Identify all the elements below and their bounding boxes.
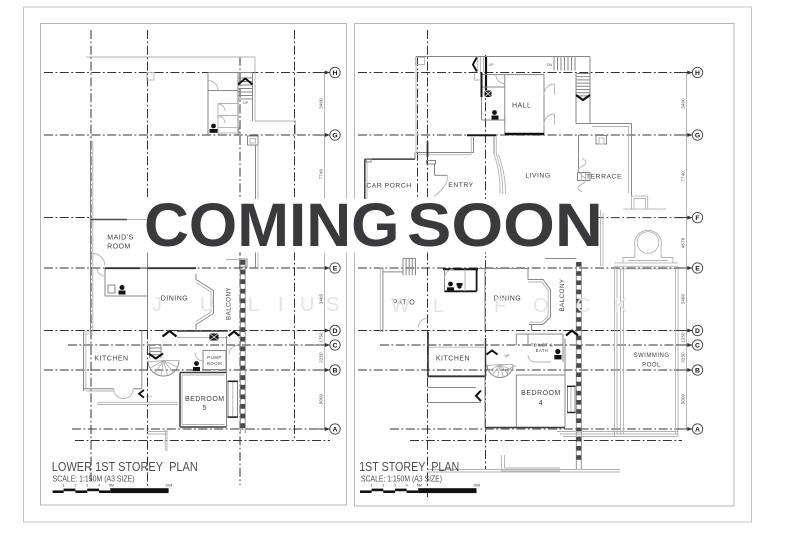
svg-text:LIVING: LIVING xyxy=(525,173,550,180)
svg-text:CAR PORCH: CAR PORCH xyxy=(366,183,411,190)
svg-text:F: F xyxy=(494,295,506,317)
svg-text:TERRACE: TERRACE xyxy=(586,174,622,181)
svg-text:18.5': 18.5' xyxy=(146,395,153,399)
svg-text:2: 2 xyxy=(382,484,384,488)
svg-text:BATH: BATH xyxy=(536,348,549,353)
svg-text:D: D xyxy=(333,328,338,335)
svg-text:KITCHEN: KITCHEN xyxy=(94,356,128,363)
svg-text:O: O xyxy=(533,295,549,317)
svg-text:TOILET &: TOILET & xyxy=(531,342,553,347)
svg-text:1: 1 xyxy=(63,484,65,488)
svg-text:BEDROOM: BEDROOM xyxy=(185,396,225,403)
svg-text:J: J xyxy=(152,294,162,316)
svg-text:5M: 5M xyxy=(417,484,422,488)
svg-text:L: L xyxy=(433,295,444,317)
svg-text:5000: 5000 xyxy=(319,393,324,404)
svg-text:7740: 7740 xyxy=(681,171,686,182)
svg-text:3: 3 xyxy=(394,484,396,488)
svg-text:BEDROOM: BEDROOM xyxy=(521,390,561,397)
svg-text:3250: 3250 xyxy=(681,352,686,363)
svg-text:A: A xyxy=(695,426,700,433)
svg-text:SCALE: 1:150M (A3 SIZE): SCALE: 1:150M (A3 SIZE) xyxy=(361,475,442,484)
svg-text:L: L xyxy=(248,294,259,316)
svg-text:H: H xyxy=(333,70,338,77)
svg-text:5000: 5000 xyxy=(681,393,686,404)
svg-text:A: A xyxy=(333,426,338,433)
svg-text:POOL: POOL xyxy=(642,363,661,369)
svg-text:1250: 1250 xyxy=(681,332,686,343)
svg-text:I: I xyxy=(278,294,284,316)
svg-text:3460: 3460 xyxy=(319,98,324,109)
svg-text:G: G xyxy=(332,132,337,139)
svg-text:E: E xyxy=(695,265,700,272)
svg-text:4: 4 xyxy=(406,484,408,488)
svg-text:3460: 3460 xyxy=(681,98,686,109)
svg-text:1: 1 xyxy=(371,484,373,488)
svg-text:7740: 7740 xyxy=(319,168,324,179)
svg-text:3: 3 xyxy=(86,484,88,488)
svg-text:ROOM: ROOM xyxy=(207,361,222,366)
svg-text:1750: 1750 xyxy=(319,332,324,343)
svg-text:U: U xyxy=(300,294,314,316)
svg-text:DN: DN xyxy=(547,63,553,67)
svg-text:10M: 10M xyxy=(473,484,480,488)
svg-text:3460: 3460 xyxy=(681,293,686,304)
svg-text:UP: UP xyxy=(505,354,511,358)
svg-text:COMING: COMING xyxy=(144,191,400,259)
svg-text:C: C xyxy=(333,342,338,349)
svg-text:U: U xyxy=(200,294,214,316)
svg-text:4: 4 xyxy=(98,484,100,488)
svg-text:10M: 10M xyxy=(165,484,172,488)
svg-text:3460: 3460 xyxy=(319,293,324,304)
svg-text:G: G xyxy=(695,132,700,139)
svg-text:HALL: HALL xyxy=(512,103,532,110)
svg-text:F: F xyxy=(695,215,699,222)
svg-text:PUMP: PUMP xyxy=(207,355,221,360)
svg-text:S: S xyxy=(326,294,339,316)
svg-text:LOWER 1ST STOREY PLAN: LOWER 1ST STOREY PLAN xyxy=(52,460,198,474)
svg-text:4578: 4578 xyxy=(681,237,686,248)
svg-text:C: C xyxy=(576,295,590,317)
svg-text:2250: 2250 xyxy=(319,352,324,363)
svg-text:4: 4 xyxy=(539,400,543,407)
svg-text:5M: 5M xyxy=(109,484,114,488)
svg-text:E: E xyxy=(333,265,338,272)
svg-text:H: H xyxy=(695,70,700,77)
svg-text:DINING: DINING xyxy=(161,296,189,303)
svg-text:D: D xyxy=(695,328,700,335)
svg-text:SOON: SOON xyxy=(407,191,603,259)
svg-text:W: W xyxy=(391,295,410,317)
svg-text:ENTRY: ENTRY xyxy=(448,182,473,189)
svg-text:B: B xyxy=(695,367,700,374)
svg-text:B: B xyxy=(333,367,338,374)
svg-text:2: 2 xyxy=(74,484,76,488)
svg-text:MAID'S: MAID'S xyxy=(107,235,134,242)
svg-text:SWIMMING: SWIMMING xyxy=(634,353,670,359)
svg-text:KITCHEN: KITCHEN xyxy=(436,356,470,363)
svg-text:BALCONY: BALCONY xyxy=(559,278,566,311)
svg-text:5: 5 xyxy=(203,405,207,412)
svg-text:SCALE: 1:150M (A3 SIZE): SCALE: 1:150M (A3 SIZE) xyxy=(53,475,135,484)
svg-text:BALCONY: BALCONY xyxy=(226,287,233,320)
svg-text:1ST STOREY PLAN: 1ST STOREY PLAN xyxy=(359,460,459,474)
svg-text:C: C xyxy=(695,342,700,349)
svg-text:ROOM: ROOM xyxy=(107,244,131,251)
svg-text:UP: UP xyxy=(243,101,249,105)
svg-text:K: K xyxy=(614,295,628,317)
svg-text:UP: UP xyxy=(489,63,495,67)
